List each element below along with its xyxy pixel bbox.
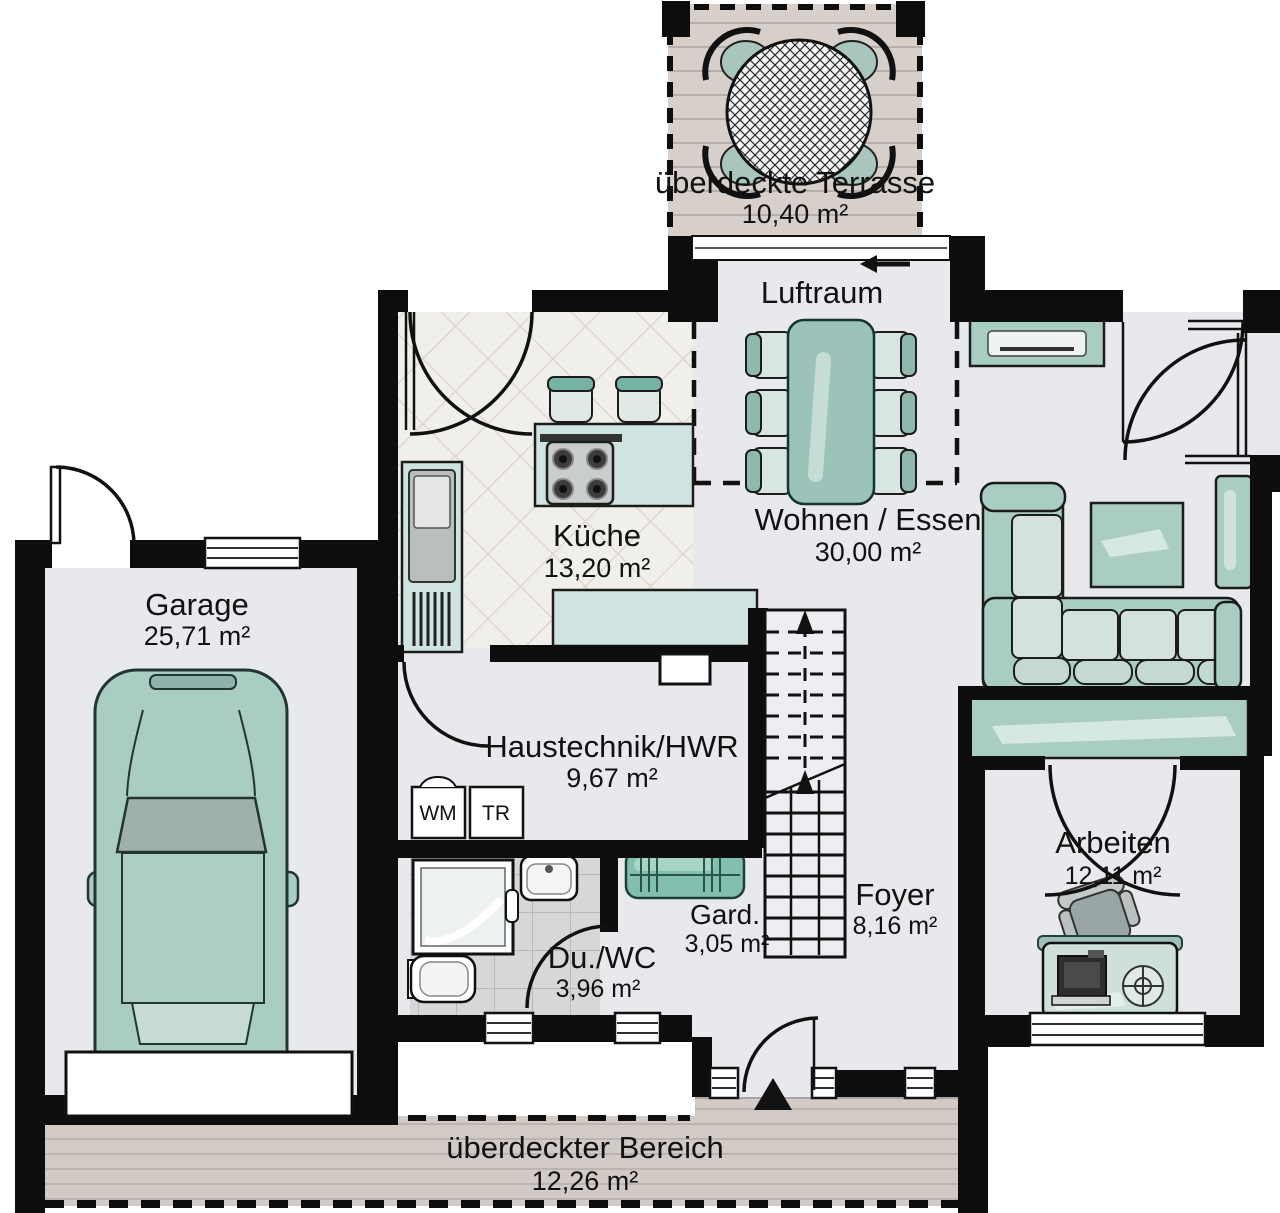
dining-table [788, 320, 874, 504]
label-dryer: TR [482, 802, 510, 825]
window-foyer [905, 1068, 935, 1098]
room-label-gard: Gard. [690, 899, 760, 930]
sideboard-south [968, 698, 1248, 758]
room-area-kueche: 13,20 m² [544, 553, 651, 583]
cooktop [547, 442, 613, 504]
dining-set [746, 320, 916, 504]
room-label-terrasse: überdeckte Terrasse [655, 165, 935, 200]
garage-door [66, 1052, 352, 1116]
desk-target-symbol [1123, 966, 1163, 1006]
toilet [408, 956, 475, 1002]
room-label-kueche: Küche [553, 518, 641, 553]
floor-plan: überdeckte Terrasse 10,40 m² Luftraum Kü… [0, 0, 1280, 1213]
room-area-haustechnik: 9,67 m² [566, 763, 658, 793]
coffee-table [1091, 503, 1183, 587]
window-arbeiten [1030, 1013, 1205, 1045]
room-area-foyer: 8,16 m² [853, 912, 938, 940]
room-label-luftraum: Luftraum [761, 275, 883, 310]
room-label-arbeiten: Arbeiten [1055, 825, 1170, 860]
shower [413, 860, 518, 954]
window-garage [205, 538, 300, 568]
room-area-gard: 3,05 m² [685, 930, 770, 958]
room-area-arbeiten: 12,11 m² [1065, 862, 1162, 890]
bar-stool [616, 377, 662, 422]
sink [521, 856, 577, 900]
floor-plan-svg: überdeckte Terrasse 10,40 m² Luftraum Kü… [0, 0, 1280, 1213]
room-label-duwc: Du./WC [548, 940, 657, 975]
room-area-terrasse: 10,40 m² [742, 199, 849, 229]
sideboard-north [970, 320, 1104, 366]
room-label-foyer: Foyer [855, 877, 934, 912]
entrance-sidelight [710, 1068, 738, 1098]
window-gard [615, 1013, 660, 1043]
terrace-table [727, 40, 871, 184]
laptop [1052, 950, 1110, 1005]
room-label-bereich: überdeckter Bereich [446, 1130, 723, 1165]
terrace-door-band [692, 236, 950, 260]
window-bath [485, 1013, 533, 1043]
room-area-bereich: 12,26 m² [532, 1166, 639, 1196]
kitchen-island [535, 424, 693, 506]
tv-board [1216, 476, 1252, 588]
label-washer: WM [419, 802, 456, 825]
kitchen-counter [553, 590, 757, 646]
room-area-garage: 25,71 m² [144, 621, 251, 651]
room-area-duwc: 3,96 m² [556, 975, 641, 1003]
room-label-garage: Garage [145, 587, 248, 622]
car [88, 670, 298, 1094]
fridge [402, 462, 462, 652]
room-label-haustechnik: Haustechnik/HWR [485, 729, 738, 764]
staircase [765, 610, 845, 957]
room-area-wohnen: 30,00 m² [815, 537, 922, 567]
chimney-duct [660, 654, 710, 684]
room-label-wohnen: Wohnen / Essen [755, 502, 982, 537]
garage-side-door [51, 467, 134, 545]
bar-stool [548, 377, 594, 422]
entrance-sidelight [812, 1068, 836, 1098]
